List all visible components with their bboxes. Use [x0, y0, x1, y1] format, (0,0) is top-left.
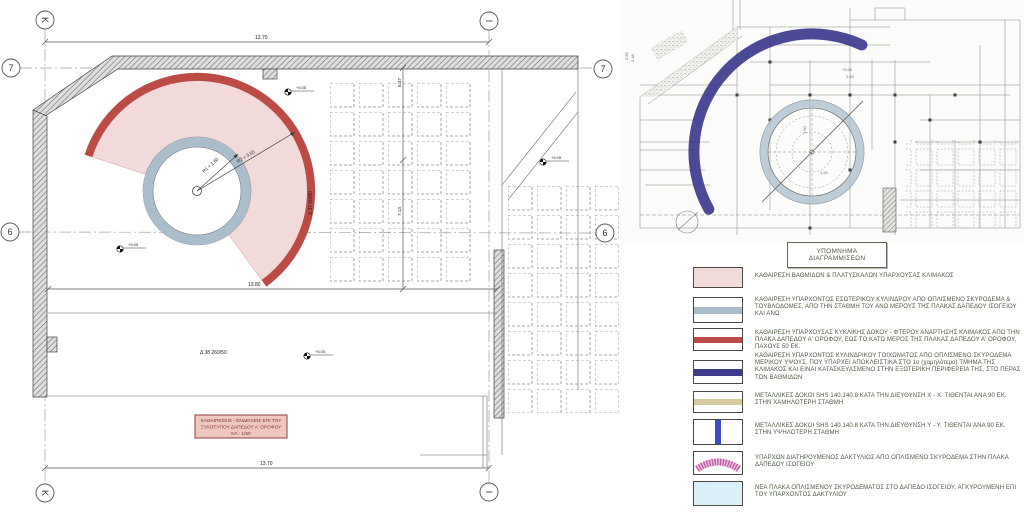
legend-header-box: ΥΠΟΜΝΗΜΑ ΔΙΑΓΡΑΜΜΙΣΕΩΝ — [787, 242, 887, 268]
title-line3: ΚΛ : 1/50 — [231, 431, 251, 437]
spot-elevation-value: +5.05 — [128, 242, 139, 247]
annotation-dim: 1.40 — [846, 74, 855, 79]
annotation-level: +0.00 — [842, 67, 853, 72]
beam-label-bottom: Δ 38 260/50 — [200, 350, 227, 356]
spot-elevation-1: +5.05 — [285, 85, 314, 95]
legend-swatch-navy-band — [693, 360, 743, 384]
bubble-7-left: 7 — [8, 63, 13, 73]
legend-item-text: ΜΕΤΑΛΛΙΚΕΣ ΔΟΚΟΙ SHS 140.140.8 ΚΑΤΑ ΤΗΝ … — [755, 393, 1023, 407]
legend-item-text: ΚΑΘΑΙΡΕΣΗ ΥΠΑΡΧΟΝΤΟΣ ΚΥΛΙΝΔΡΙΚΟΥ ΤΟΙΧΩΜΑ… — [755, 353, 1023, 382]
stair-demolition-sector: R1 = 1.60 R2 = 3.55 — [85, 73, 315, 286]
floor-plan-demolition-drawing: R1 = 1.60 R2 = 3.55 13.70 13.80 13.70 6.… — [0, 0, 640, 520]
drawing-sheet: R1 = 1.60 R2 = 3.55 13.70 13.80 13.70 6.… — [0, 0, 1024, 520]
legend-item-text: ΥΠΑΡΧΩΝ ΔΙΑΤΗΡΟΥΜΕΝΟΣ ΔΑΚΤΥΛΙΟΣ ΑΠΟ ΟΠΛΙ… — [755, 455, 1023, 469]
bubble-6-right: 6 — [602, 228, 607, 238]
spot-elevation-value: +5.05 — [296, 85, 307, 90]
bubble-7-right: 7 — [600, 64, 605, 74]
legend-swatch-tan-band — [693, 391, 743, 413]
tile-grid-region — [905, 140, 1020, 228]
title-line1: ΚΑΘΑΙΡΕΣΕΙΣ - ΕΝΔΕΙΞΕΙΣ ΕΠΙ ΤΟΥ — [201, 418, 283, 424]
bubble-k-bottom: K — [40, 490, 50, 496]
legend-item-text: ΚΑΘΑΙΡΕΣΗ ΥΠΑΡΧΟΥΣΑΣ ΚΥΚΛΙΚΗΣ ΔΟΚΟΥ - ΦΤ… — [755, 330, 1023, 352]
title-line2: ΞΥΛΟΤΥΠΟΥ ΔΑΠΕΔΟΥ Α' ΟΡΟΦΟΥ — [201, 425, 283, 431]
hatched-pier — [883, 188, 896, 232]
drawing-title-box: ΚΑΘΑΙΡΕΣΕΙΣ - ΕΝΔΕΙΞΕΙΣ ΕΠΙ ΤΟΥ ΞΥΛΟΤΥΠΟ… — [195, 415, 287, 438]
legend-item-text: ΚΑΘΑΙΡΕΣΗ ΥΠΑΡΧΟΝΤΟΣ ΕΣΩΤΕΡΙΚΟΥ ΚΥΛΙΝΔΡΟ… — [755, 297, 1023, 319]
spot-elevation-value: +5.05 — [315, 349, 326, 354]
legend-swatch-red-band — [693, 328, 743, 351]
bubble-i-top: Ι — [484, 20, 494, 23]
legend-item-text: ΝΕΑ ΠΛΑΚΑ ΟΠΛΙΣΜΕΝΟΥ ΣΚΥΡΟΔΕΜΑΤΟΣ ΣΤΟ ΔΑ… — [755, 485, 1023, 499]
legend-item-text: ΜΕΤΑΛΛΙΚΕΣ ΔΟΚΟΙ SHS 140.140.8 ΚΑΤΑ ΤΗΝ … — [755, 423, 1023, 437]
legend-swatch-blue-vertical-band — [693, 419, 743, 445]
legend-swatch-bluegray-band — [693, 297, 743, 323]
bubble-6-left: 6 — [7, 227, 12, 237]
legend-swatch-magenta-arc — [693, 451, 743, 475]
dim-bottom-label: 13.70 — [260, 461, 273, 467]
spot-elevation-3: +5.05 — [304, 349, 333, 359]
dim-top-label: 13.70 — [255, 35, 268, 41]
dashed-square-grid-right — [508, 186, 619, 413]
legend-swatch-pink — [693, 267, 743, 288]
bubble-k-top: K — [40, 17, 50, 23]
spot-elevation-value: +5.05 — [551, 155, 562, 160]
annotation-dim: 2.44 — [630, 53, 635, 62]
bubble-i-bottom: Ι — [484, 491, 494, 494]
dim-mid-label: 13.80 — [248, 282, 261, 288]
annotation-dim: 2.50 — [624, 51, 629, 60]
legend-header-line1: ΥΠΟΜΝΗΜΑ — [816, 248, 857, 256]
scanned-formwork-detail-drawing: +0.00 1.40 1.50 1.20 2.50 2.44 — [620, 0, 1024, 245]
legend-header-line2: ΔΙΑΓΡΑΜΜΙΣΕΩΝ — [809, 255, 866, 263]
dim-v-lower-label: 7.13 — [397, 207, 402, 216]
central-cylinder-detail — [760, 100, 864, 204]
annotation-dim: 1.20 — [820, 170, 829, 175]
beam-label-circular: Δ 37 60/60 — [308, 191, 314, 215]
legend-item-text: ΚΑΘΑΙΡΕΣΗ ΒΑΘΜΙΔΩΝ & ΠΛΑΤΥΣΚΑΛΩΝ ΥΠΑΡΧΟΥ… — [755, 273, 1023, 280]
spot-elevation-2: +5.05 — [117, 242, 146, 252]
dim-v-upper-label: 6.47 — [397, 78, 402, 87]
spot-elevation-4: +5.05 — [540, 155, 569, 165]
annotation-dim: 1.50 — [802, 125, 807, 134]
legend-swatch-cyan — [693, 481, 743, 506]
dashed-square-grid-left — [330, 83, 471, 282]
magenta-hatched-arc — [694, 452, 742, 474]
